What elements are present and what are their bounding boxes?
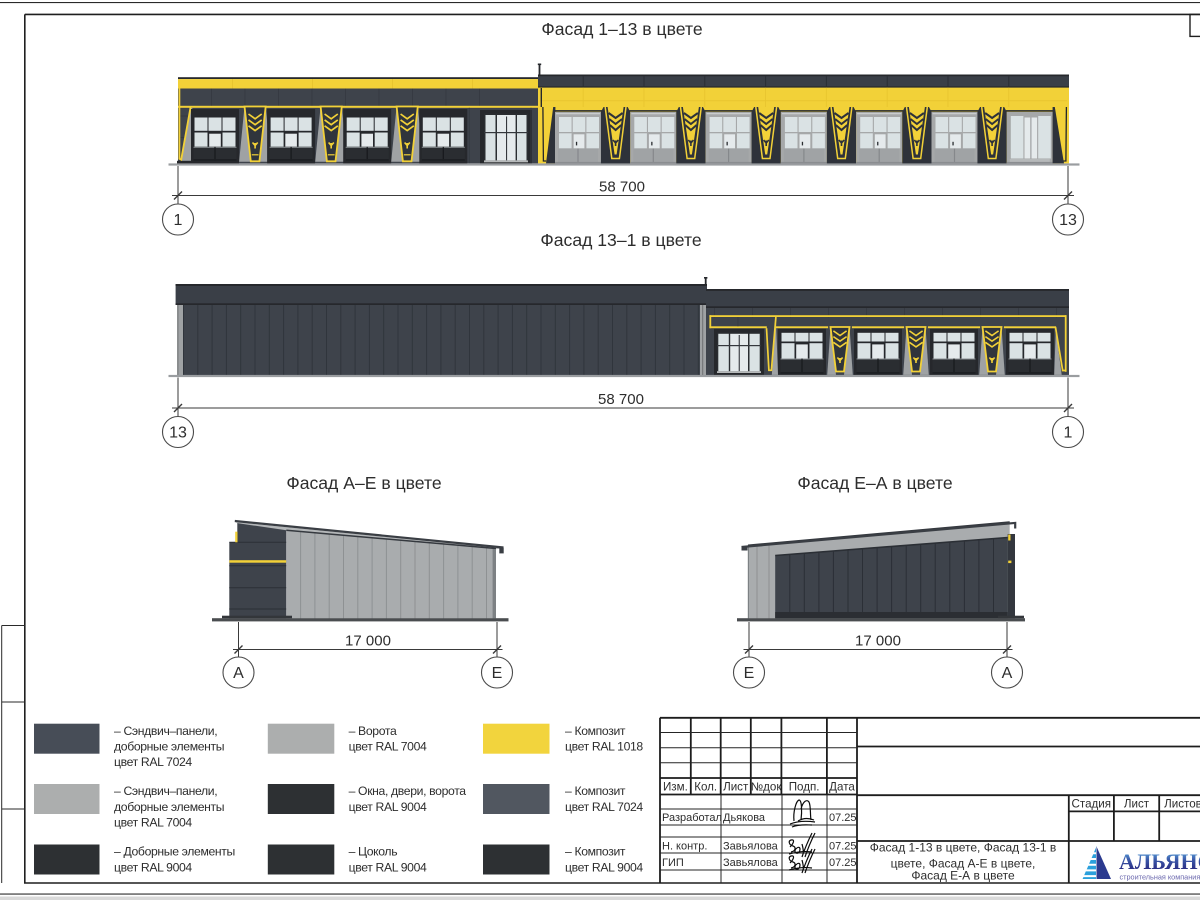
svg-text:Фасад А–Е в цвете: Фасад А–Е в цвете — [286, 473, 441, 493]
svg-text:Кол.: Кол. — [694, 781, 717, 794]
svg-text:А: А — [1002, 665, 1013, 682]
svg-text:– Доборные элементыцвет RAL 90: – Доборные элементыцвет RAL 9004 — [114, 845, 235, 875]
svg-text:07.25: 07.25 — [829, 812, 857, 824]
svg-text:13: 13 — [169, 425, 187, 442]
svg-text:Разработал: Разработал — [662, 812, 722, 824]
svg-text:58 700: 58 700 — [598, 391, 644, 408]
svg-text:Е: Е — [744, 665, 755, 682]
svg-text:17 000: 17 000 — [855, 633, 901, 650]
svg-text:А: А — [233, 665, 244, 682]
svg-text:Фасад 1–13 в цвете: Фасад 1–13 в цвете — [541, 19, 702, 39]
svg-text:– Окна, двери, воротацвет RAL: – Окна, двери, воротацвет RAL 9004 — [349, 784, 467, 814]
svg-text:ГИП: ГИП — [662, 857, 684, 869]
svg-text:строительная компания: строительная компания — [1120, 873, 1200, 882]
svg-text:№док: №док — [751, 781, 783, 794]
svg-text:58 700: 58 700 — [599, 179, 645, 196]
svg-text:Н. контр.: Н. контр. — [662, 841, 707, 853]
svg-text:13: 13 — [1059, 212, 1077, 229]
svg-text:– Воротацвет RAL 7004: – Воротацвет RAL 7004 — [349, 724, 427, 754]
svg-text:Дьякова: Дьякова — [723, 812, 766, 824]
svg-text:– Сэндвич–панели,доборные элем: – Сэндвич–панели,доборные элементыцвет R… — [114, 784, 224, 829]
svg-text:Фасад 13–1 в цвете: Фасад 13–1 в цвете — [540, 230, 701, 250]
svg-text:Изм.: Изм. — [663, 781, 688, 794]
svg-text:Фасад 1-13 в цвете, Фасад 13-1: Фасад 1-13 в цвете, Фасад 13-1 в — [870, 841, 1057, 855]
svg-text:Листов: Листов — [1164, 798, 1200, 811]
svg-text:Стадия: Стадия — [1072, 798, 1112, 811]
svg-text:Завьялова: Завьялова — [723, 857, 779, 869]
svg-text:Подп.: Подп. — [789, 781, 820, 794]
svg-text:Е: Е — [492, 665, 503, 682]
svg-text:– Композитцвет RAL 7024: – Композитцвет RAL 7024 — [565, 784, 643, 814]
svg-text:Лист: Лист — [1124, 798, 1150, 811]
svg-text:Фасад Е-А в цвете: Фасад Е-А в цвете — [911, 869, 1015, 883]
svg-text:Дата: Дата — [829, 781, 855, 794]
svg-text:Завьялова: Завьялова — [723, 841, 779, 853]
svg-text:– Сэндвич–панели,доборные элем: – Сэндвич–панели,доборные элементыцвет R… — [114, 724, 224, 769]
svg-text:Фасад Е–А в цвете: Фасад Е–А в цвете — [797, 473, 952, 493]
svg-text:Лист: Лист — [723, 781, 749, 794]
svg-text:АЛЬЯНС: АЛЬЯНС — [1119, 849, 1200, 874]
svg-text:1: 1 — [1064, 425, 1073, 442]
svg-text:17 000: 17 000 — [345, 633, 391, 650]
svg-text:– Цокольцвет RAL 9004: – Цокольцвет RAL 9004 — [349, 845, 427, 875]
svg-text:07.25: 07.25 — [829, 841, 857, 853]
svg-text:– Композитцвет RAL 1018: – Композитцвет RAL 1018 — [565, 724, 643, 754]
svg-text:1: 1 — [174, 212, 183, 229]
svg-text:– Композитцвет RAL 9004: – Композитцвет RAL 9004 — [565, 845, 643, 875]
svg-text:07.25: 07.25 — [829, 857, 857, 869]
